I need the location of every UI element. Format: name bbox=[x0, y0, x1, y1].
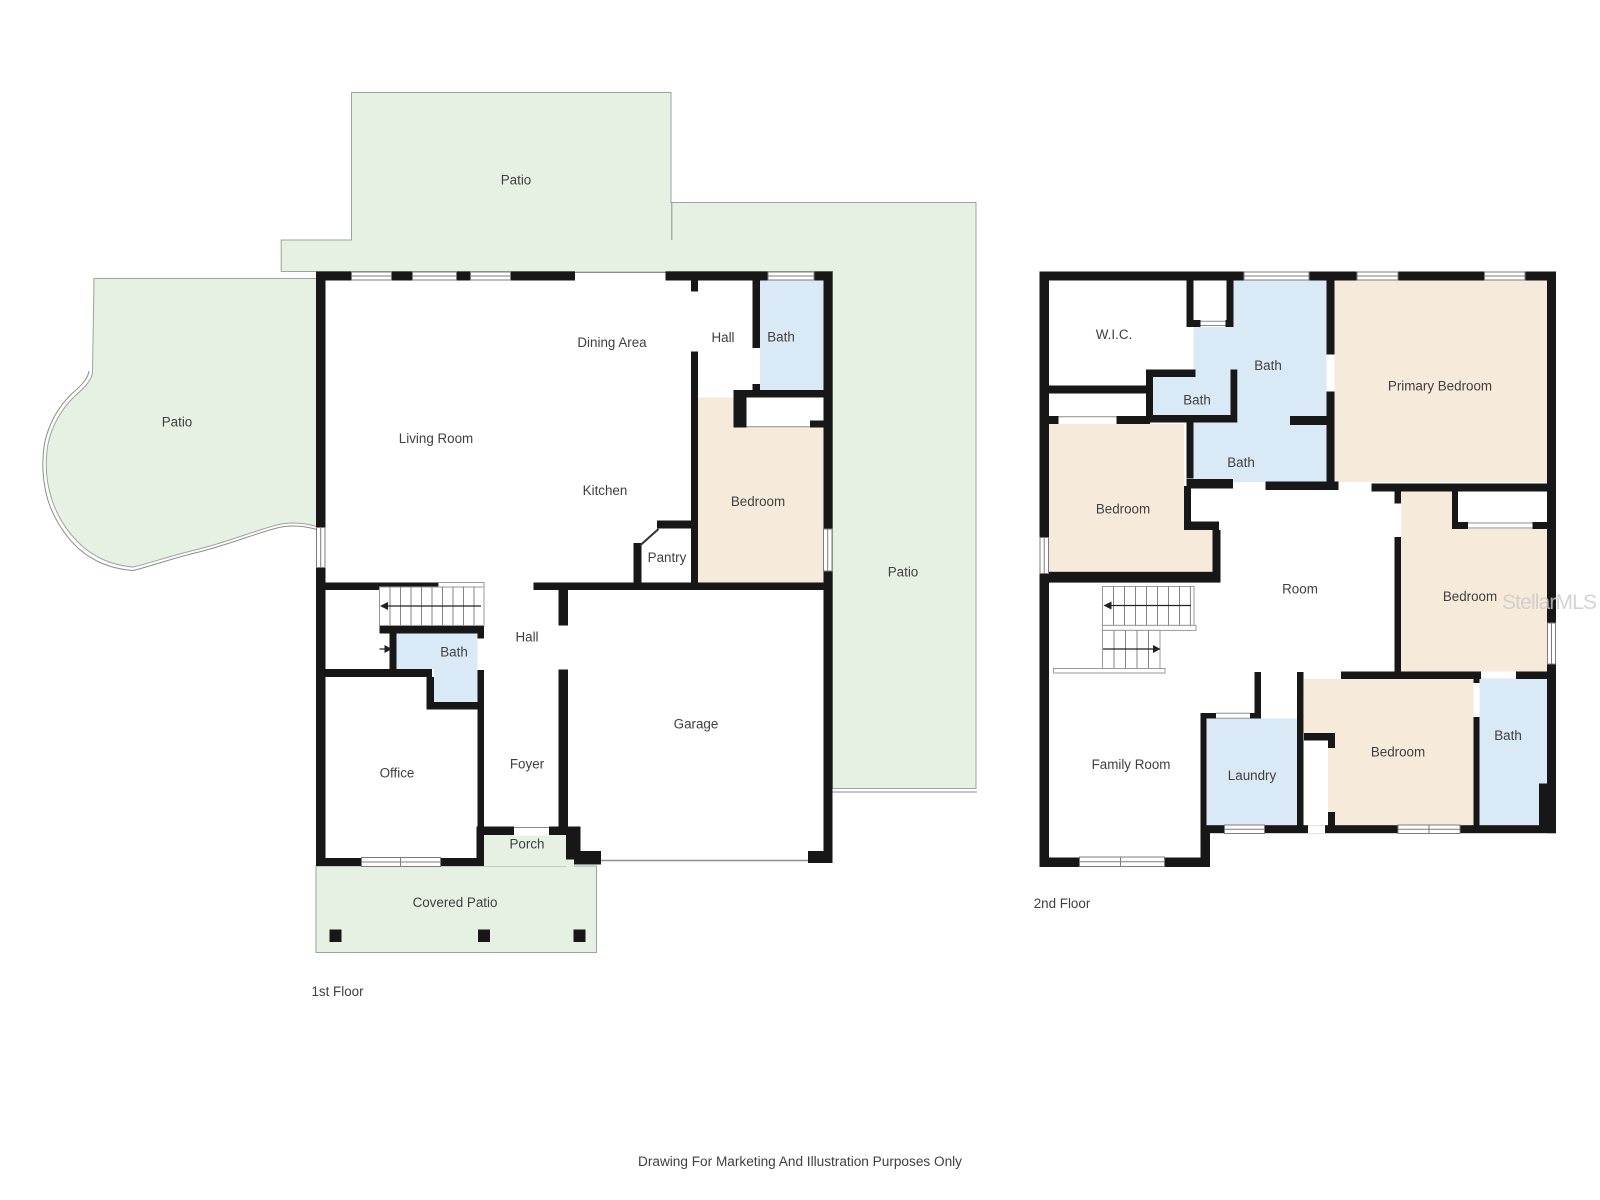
svg-text:Bath: Bath bbox=[1183, 393, 1211, 408]
svg-text:Kitchen: Kitchen bbox=[583, 483, 628, 498]
svg-text:Dining Area: Dining Area bbox=[577, 335, 647, 350]
svg-text:Laundry: Laundry bbox=[1228, 768, 1277, 783]
svg-text:Pantry: Pantry bbox=[648, 550, 687, 565]
svg-text:Primary Bedroom: Primary Bedroom bbox=[1388, 379, 1492, 394]
svg-text:Patio: Patio bbox=[162, 415, 193, 430]
svg-text:Hall: Hall bbox=[711, 330, 734, 345]
svg-text:Living Room: Living Room bbox=[399, 431, 473, 446]
svg-text:StellarMLS: StellarMLS bbox=[1502, 591, 1597, 614]
svg-text:Bath: Bath bbox=[1227, 455, 1255, 470]
svg-text:Porch: Porch bbox=[510, 837, 545, 852]
svg-text:Bath: Bath bbox=[440, 645, 468, 660]
svg-text:Office: Office bbox=[380, 766, 415, 781]
svg-text:Covered Patio: Covered Patio bbox=[413, 895, 498, 910]
svg-text:Bath: Bath bbox=[1254, 358, 1282, 373]
svg-text:Drawing For Marketing And Illu: Drawing For Marketing And Illustration P… bbox=[638, 1154, 962, 1169]
svg-text:Garage: Garage bbox=[674, 717, 719, 732]
svg-text:Bedroom: Bedroom bbox=[731, 494, 785, 509]
svg-text:Patio: Patio bbox=[888, 565, 919, 580]
svg-text:Patio: Patio bbox=[501, 173, 532, 188]
svg-text:Bedroom: Bedroom bbox=[1371, 745, 1425, 760]
svg-text:1st Floor: 1st Floor bbox=[311, 984, 364, 999]
svg-text:Room: Room bbox=[1282, 582, 1318, 597]
svg-text:Bedroom: Bedroom bbox=[1443, 589, 1497, 604]
svg-text:W.I.C.: W.I.C. bbox=[1096, 327, 1132, 342]
svg-text:Family Room: Family Room bbox=[1092, 757, 1171, 772]
svg-text:2nd Floor: 2nd Floor bbox=[1034, 896, 1091, 911]
svg-text:Hall: Hall bbox=[515, 630, 538, 645]
svg-text:Foyer: Foyer bbox=[510, 757, 545, 772]
svg-text:Bath: Bath bbox=[767, 330, 795, 345]
svg-text:Bedroom: Bedroom bbox=[1096, 502, 1150, 517]
svg-text:Bath: Bath bbox=[1494, 728, 1522, 743]
